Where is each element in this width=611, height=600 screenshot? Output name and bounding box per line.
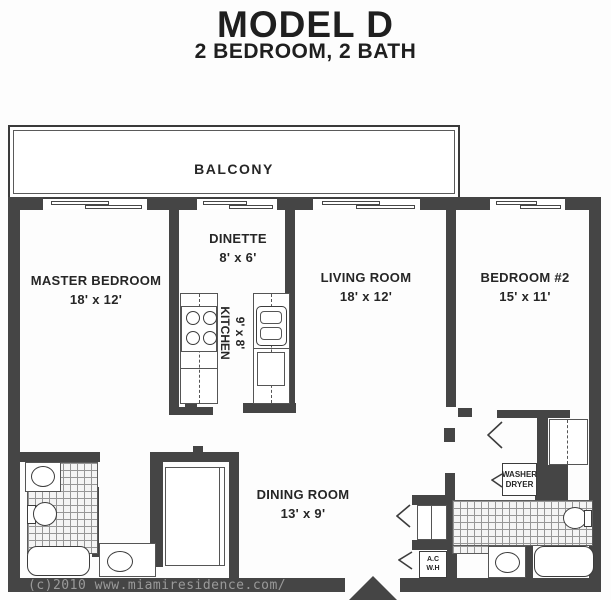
closet-master xyxy=(165,467,225,566)
door-chevron-icon xyxy=(396,504,411,533)
room-label-bedroom-2: BEDROOM #215' x 11' xyxy=(455,269,595,307)
door-chevron-icon xyxy=(398,551,413,575)
bathtub-icon xyxy=(27,546,90,576)
room-label-living-room: LIVING ROOM18' x 12' xyxy=(296,269,436,307)
dishwasher-icon xyxy=(257,352,285,386)
closet-bedroom2 xyxy=(549,419,588,465)
wall-closet-top xyxy=(150,452,239,462)
wall-door-jamb xyxy=(193,446,203,453)
wall-top-pier xyxy=(420,197,490,210)
wall-laundry-block xyxy=(535,465,568,503)
door-chevron-icon xyxy=(487,421,503,454)
room-label-kitchen: KITCHEN xyxy=(218,298,232,368)
closet-entry xyxy=(417,505,447,540)
floor-plan-canvas: MODEL D 2 BEDROOM, 2 BATH BALCONY MASTER… xyxy=(0,0,611,600)
room-label-dinette: DINETTE8' x 6' xyxy=(178,230,298,268)
wall-top-pier xyxy=(8,197,43,210)
washer-dryer-box: WASHERDRYER xyxy=(502,463,537,496)
entry-arrow-icon xyxy=(349,576,397,600)
wall-entry-closet-bottom xyxy=(412,540,450,550)
stove-burner-icon xyxy=(203,331,217,345)
wall-door-jamb xyxy=(444,428,455,442)
kitchen-sink-basin xyxy=(260,327,282,340)
closet-rod-line xyxy=(431,505,432,540)
room-label-dining-room: DINING ROOM13' x 9' xyxy=(238,486,368,524)
wall-masterbath-top xyxy=(8,452,100,462)
stove-burner-icon xyxy=(186,331,200,345)
page-subtitle: 2 BEDROOM, 2 BATH xyxy=(0,40,611,64)
balcony-label: BALCONY xyxy=(8,161,460,177)
wall-exterior-left xyxy=(8,197,20,592)
stove-burner-icon xyxy=(203,311,217,325)
watermark: (c)2010 www.miamiresidence.com/ xyxy=(28,578,286,593)
door-chevron-icon xyxy=(491,473,503,493)
wall-kitchen-bottom xyxy=(243,403,296,413)
window-master-bedroom xyxy=(43,197,147,209)
wall-bedroom2-bottom xyxy=(497,410,570,418)
closet-rod-line xyxy=(567,420,568,464)
window-living-room xyxy=(313,197,420,209)
kitchen-cabinet-line xyxy=(181,368,217,369)
wall-top-pier xyxy=(147,197,197,210)
room-label-master-bedroom: MASTER BEDROOM18' x 12' xyxy=(16,272,176,310)
wall-living-bedroom2 xyxy=(446,210,456,407)
stove-burner-icon xyxy=(186,311,200,325)
sink-icon xyxy=(107,551,133,572)
wall-door-jamb xyxy=(458,408,472,417)
wall-top-pier xyxy=(565,197,601,210)
room-label-kitchen-dims: 9' x 8' xyxy=(235,304,247,362)
sink-icon xyxy=(495,552,520,573)
window-bedroom-2 xyxy=(490,197,565,209)
tile-floor-bath2 xyxy=(452,545,490,554)
window-dinette xyxy=(197,197,277,209)
ac-water-heater-box: A.CW.H xyxy=(419,551,447,578)
wall-top-pier xyxy=(277,197,313,210)
kitchen-cabinet-line xyxy=(253,348,290,349)
wall-exterior-bottom-right xyxy=(400,578,601,592)
sink-icon xyxy=(31,466,55,487)
wall-kitchen-foot xyxy=(169,407,213,415)
closet-rod-line xyxy=(219,467,220,566)
toilet-icon xyxy=(33,502,57,526)
kitchen-sink-basin xyxy=(260,311,282,324)
toilet-tank-icon xyxy=(584,510,592,527)
bathtub-icon xyxy=(534,546,594,577)
